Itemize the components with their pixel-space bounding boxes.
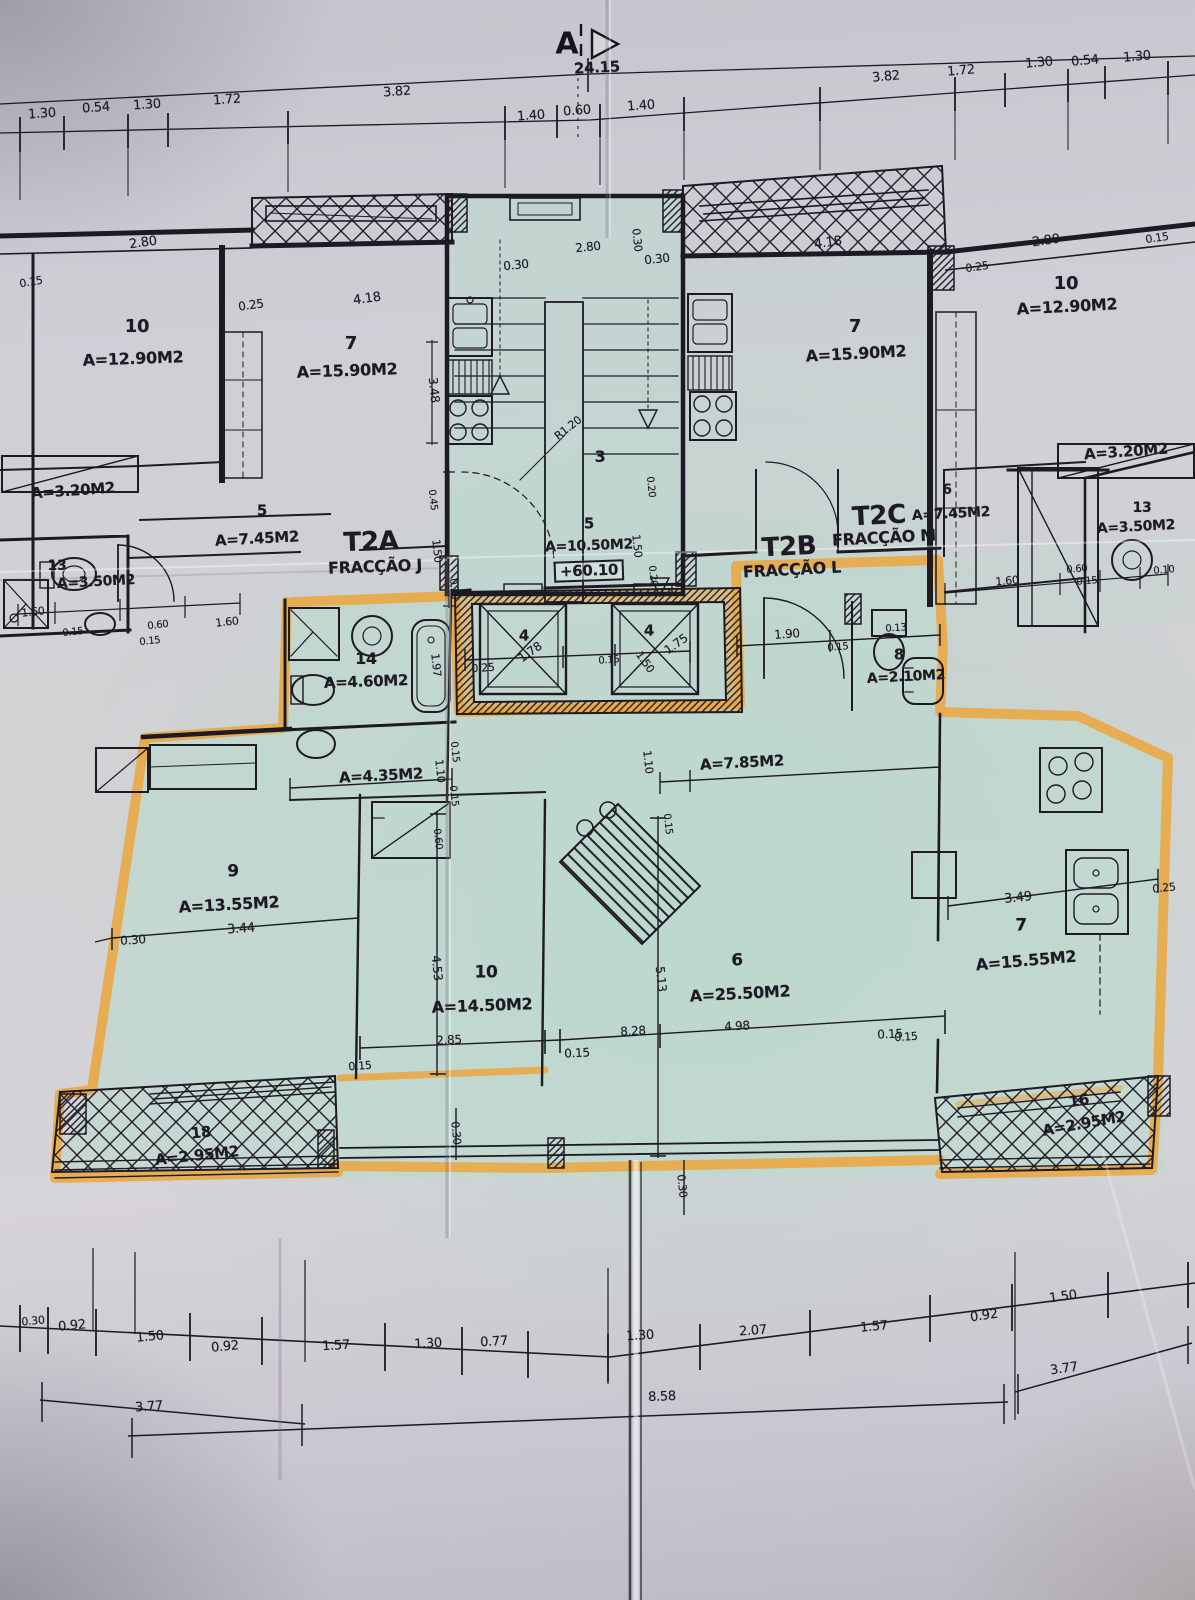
dim-label: 0.25 (471, 662, 495, 675)
dim-label: 3.44 (227, 922, 256, 937)
room-area: A=7.45M2 (215, 529, 300, 548)
room-number: 10 (125, 318, 149, 336)
room-number: 10 (474, 965, 497, 982)
dim-label: 1.10 (641, 750, 654, 774)
overall-dim: 24.15 (574, 59, 621, 76)
dim-label: 0.15 (448, 741, 460, 763)
fraction-t2a-code: T2A (343, 528, 399, 556)
dim-label: 0.92 (211, 1339, 240, 1354)
dim-label: 1.30 (28, 107, 57, 122)
dim-label: R1.20 (553, 414, 584, 442)
dim-label: 3.48 (427, 377, 442, 404)
room-area: A=14.50M2 (431, 996, 532, 1016)
room-area: A=10.50M2 (545, 537, 633, 554)
dim-label: 5.13 (654, 966, 669, 993)
dim-label: 0.15 (348, 1060, 372, 1073)
dim-label: 2.80 (128, 235, 157, 252)
dim-label: 3.82 (872, 69, 901, 84)
dim-label: 1.50 (1048, 1289, 1077, 1306)
dim-label: 1.10 (433, 759, 446, 783)
dim-label: 0.54 (82, 101, 111, 116)
dim-label: 1.40 (517, 109, 546, 124)
room-number: 5 (584, 517, 594, 532)
dim-label: 1.60 (21, 605, 45, 618)
dim-label: 0.92 (969, 1308, 998, 1325)
fraction-t2c-name: FRACÇÃO M (832, 527, 937, 548)
fraction-t2b-name: FRACÇÃO L (743, 559, 842, 580)
dim-label: 0.15 (62, 627, 84, 639)
dim-label: 1.30 (1025, 55, 1054, 70)
dim-label: 1.72 (947, 63, 976, 78)
room-area: A=4.35M2 (339, 766, 424, 785)
dim-label: 0.15 (1145, 231, 1170, 245)
room-number: 4 (519, 629, 529, 644)
dim-label: 1.72 (213, 93, 242, 108)
dim-label: 0.30 (503, 258, 530, 273)
dim-label: 1.60 (215, 615, 239, 628)
dim-label: 1.97 (429, 653, 442, 677)
dim-label: 0.13 (885, 623, 907, 634)
floorplan-photo: A 24.151.300.541.301.723.821.400.601.403… (0, 0, 1195, 1600)
room-number: 5 (257, 504, 267, 519)
dim-label: 1.50 (634, 649, 656, 674)
dim-label: 0.15 (661, 813, 673, 835)
room-number: 7 (345, 335, 357, 353)
dim-label: 2.80 (1031, 233, 1060, 250)
dim-label: 0.25 (965, 260, 990, 274)
dim-label: 4.98 (724, 1019, 750, 1032)
room-area: A=3.50M2 (1096, 518, 1175, 536)
dim-label: 8.58 (648, 1390, 676, 1404)
room-area: A=12.90M2 (82, 349, 183, 369)
room-number: 18 (190, 1124, 212, 1141)
dim-label: 1.30 (133, 98, 162, 113)
dim-label: 4.18 (352, 291, 381, 308)
room-area: A=7.85M2 (700, 753, 785, 772)
dim-label: 2.85 (436, 1033, 462, 1046)
dim-label: 0.30 (447, 578, 459, 600)
room-area: A=2.95M2 (1041, 1109, 1126, 1138)
room-number: 6 (942, 483, 951, 497)
dim-label: 0.15 (827, 642, 849, 653)
room-area: A=2.95M2 (154, 1144, 239, 1168)
room-number: 7 (1015, 918, 1027, 935)
dim-label: 0.60 (431, 828, 443, 850)
room-area: A=15.90M2 (296, 361, 397, 381)
dim-label: 0.15 (894, 1031, 918, 1044)
labels-layer: A 24.151.300.541.301.723.821.400.601.403… (0, 0, 1195, 1600)
room-area: A=15.90M2 (805, 343, 906, 364)
room-number: 16 (1068, 1092, 1091, 1110)
dim-label: 1.50 (136, 1329, 165, 1344)
dim-label: 0.15 (564, 1046, 590, 1059)
dim-label: 1.57 (860, 1319, 889, 1334)
room-number: 13 (48, 559, 67, 573)
dim-label: 1.30 (1123, 49, 1152, 64)
room-number: 8 (894, 648, 904, 663)
dim-label: 0.30 (675, 1174, 688, 1198)
room-number: 3 (595, 449, 606, 465)
dim-label: 1.75 (662, 632, 690, 656)
room-area: A=3.20M2 (31, 481, 116, 502)
dim-label: 3.82 (383, 85, 412, 100)
dim-label: 3.77 (135, 1400, 164, 1415)
dim-label: 0.60 (1066, 564, 1088, 576)
dim-label: 4.53 (430, 955, 445, 982)
dim-label: 1.30 (626, 1329, 654, 1343)
room-number: 6 (731, 953, 743, 970)
room-area: A=3.20M2 (1084, 442, 1169, 463)
room-area: A=15.55M2 (975, 949, 1077, 974)
fraction-t2c-code: T2C (851, 502, 906, 531)
dim-label: 0.54 (1071, 53, 1100, 68)
dim-label: 0.20 (644, 476, 656, 498)
dim-label: 1.57 (322, 1339, 350, 1353)
dim-label: 0.25 (1152, 881, 1176, 894)
dim-label: 0.10 (1153, 565, 1175, 577)
dim-label: 0.15 (1076, 576, 1098, 588)
dim-label: 0.25 (238, 297, 265, 312)
dim-label: 4.18 (813, 235, 842, 252)
room-area: A=4.60M2 (324, 673, 409, 691)
dim-label: 1.40 (627, 99, 656, 114)
dim-label: 0.60 (563, 104, 592, 119)
dim-label: 1.90 (774, 627, 800, 641)
room-number: 13 (1133, 501, 1152, 515)
room-number: 4 (644, 624, 654, 639)
room-number: 9 (227, 864, 239, 881)
dim-label: 3.77 (1049, 1361, 1078, 1378)
dim-label: 0.15 (19, 275, 44, 290)
dim-label: 0.15 (447, 785, 459, 807)
dim-label: 0.30 (644, 252, 671, 267)
dim-label: 0.15 (139, 636, 161, 648)
dim-label: 0.45 (426, 489, 438, 511)
room-area: A=7.45M2 (911, 505, 990, 523)
dim-label: 1.60 (995, 575, 1019, 588)
room-area: A=25.50M2 (689, 983, 790, 1004)
dim-label: 3.49 (1004, 890, 1033, 906)
fraction-t2b-code: T2B (761, 533, 817, 562)
dim-label: 2.07 (739, 1324, 768, 1339)
dim-label: 0.92 (58, 1318, 87, 1333)
dim-label: 2.80 (575, 240, 602, 255)
dim-label: 0.20 (646, 565, 658, 587)
room-area: A=13.55M2 (178, 894, 279, 915)
room-number: 7 (849, 318, 861, 336)
dim-label: 0.30 (630, 228, 643, 252)
room-area: A=12.90M2 (1016, 296, 1117, 317)
dim-label: 8.28 (620, 1024, 646, 1037)
room-number: 14 (355, 651, 377, 667)
section-marker-letter: A (555, 27, 578, 62)
level-mark: +60.10 (554, 559, 625, 582)
room-area: A=2.10M2 (866, 668, 945, 686)
dim-label: 0.77 (480, 1335, 508, 1349)
dim-label: 1.50 (430, 539, 443, 563)
room-number: 10 (1054, 275, 1078, 293)
dim-label: 0.15 (598, 655, 620, 666)
dim-label: 0.60 (147, 620, 169, 632)
fraction-t2a-name: FRACÇÃO J (328, 557, 422, 576)
dim-label: 0.30 (449, 1121, 462, 1145)
dim-label: 0.30 (120, 933, 146, 947)
dim-label: 1.30 (414, 1337, 442, 1351)
dim-label: 0.30 (21, 1315, 45, 1328)
room-area: A=3.50M2 (56, 573, 135, 591)
